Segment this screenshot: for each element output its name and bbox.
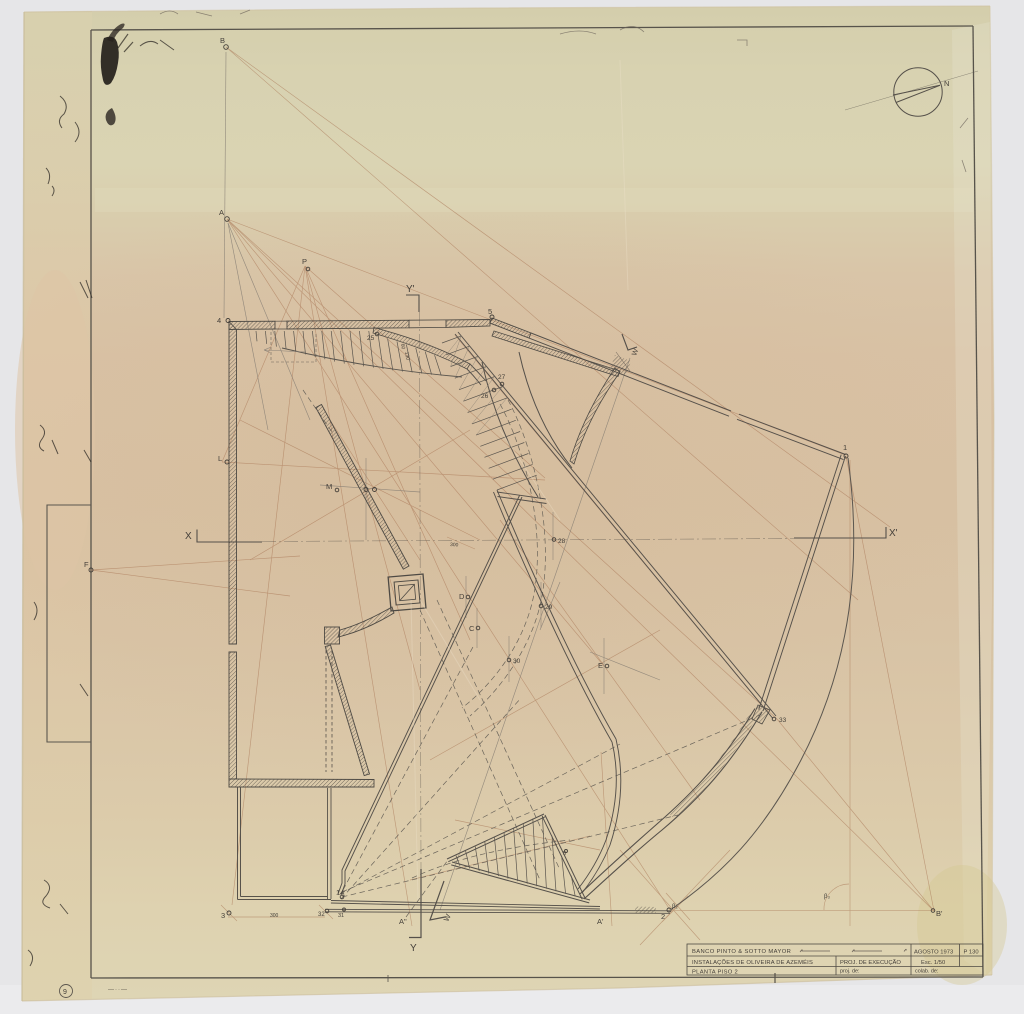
svg-text:N: N	[944, 79, 949, 88]
svg-text:colab. de:: colab. de:	[915, 969, 938, 975]
svg-text:33: 33	[779, 717, 787, 724]
svg-text:L: L	[218, 454, 222, 463]
svg-text:PROJ. DE EXECUÇÃO: PROJ. DE EXECUÇÃO	[840, 959, 901, 966]
svg-text:B': B'	[936, 909, 943, 918]
svg-text:X: X	[185, 531, 192, 542]
svg-text:Y: Y	[410, 943, 417, 954]
svg-text:3: 3	[221, 911, 225, 920]
svg-text:β₂: β₂	[672, 904, 678, 910]
svg-text:—··—: —··—	[108, 987, 128, 993]
svg-text:28: 28	[558, 538, 566, 545]
svg-text:AGOSTO 1973: AGOSTO 1973	[914, 950, 953, 956]
svg-text:C: C	[469, 624, 475, 633]
svg-text:27: 27	[498, 374, 506, 381]
svg-text:1: 1	[843, 443, 847, 452]
svg-text:X': X'	[889, 528, 898, 539]
svg-text:A: A	[219, 208, 224, 217]
svg-text:M: M	[326, 482, 332, 491]
svg-text:29: 29	[545, 604, 553, 611]
svg-text:A": A"	[399, 917, 407, 926]
svg-text:Y': Y'	[406, 284, 415, 295]
svg-text:B: B	[220, 36, 225, 45]
svg-text:30: 30	[513, 658, 521, 665]
svg-text:E: E	[598, 661, 603, 670]
svg-text:4: 4	[217, 316, 221, 325]
svg-text:proj. de:: proj. de:	[840, 969, 859, 975]
svg-text:32: 32	[318, 912, 325, 918]
svg-text:31: 31	[338, 913, 344, 919]
svg-text:2: 2	[661, 912, 665, 921]
svg-text:P: P	[302, 257, 307, 266]
svg-text:300: 300	[450, 542, 459, 548]
svg-text:14: 14	[336, 888, 344, 897]
svg-text:β₃: β₃	[824, 894, 830, 900]
svg-text:A': A'	[597, 917, 604, 926]
svg-text:5: 5	[563, 851, 566, 857]
svg-text:BANCO PINTO & SOTTO MAYOR: BANCO PINTO & SOTTO MAYOR	[692, 949, 791, 955]
svg-text:INSTALAÇÕES DE OLIVEIRA DE: INSTALAÇÕES DE OLIVEIRA DE AZEMÉIS	[692, 959, 813, 966]
svg-text:F: F	[84, 560, 89, 569]
svg-text:D: D	[459, 592, 465, 601]
svg-text:26: 26	[481, 393, 489, 400]
svg-text:300: 300	[270, 913, 279, 919]
svg-text:25: 25	[367, 335, 375, 342]
svg-text:PLANTA PISO 2: PLANTA PISO 2	[692, 970, 738, 976]
svg-text:5: 5	[488, 307, 492, 316]
svg-text:9: 9	[63, 989, 67, 996]
svg-text:Esc. 1/50: Esc. 1/50	[921, 960, 945, 966]
svg-text:P 130: P 130	[964, 950, 979, 956]
